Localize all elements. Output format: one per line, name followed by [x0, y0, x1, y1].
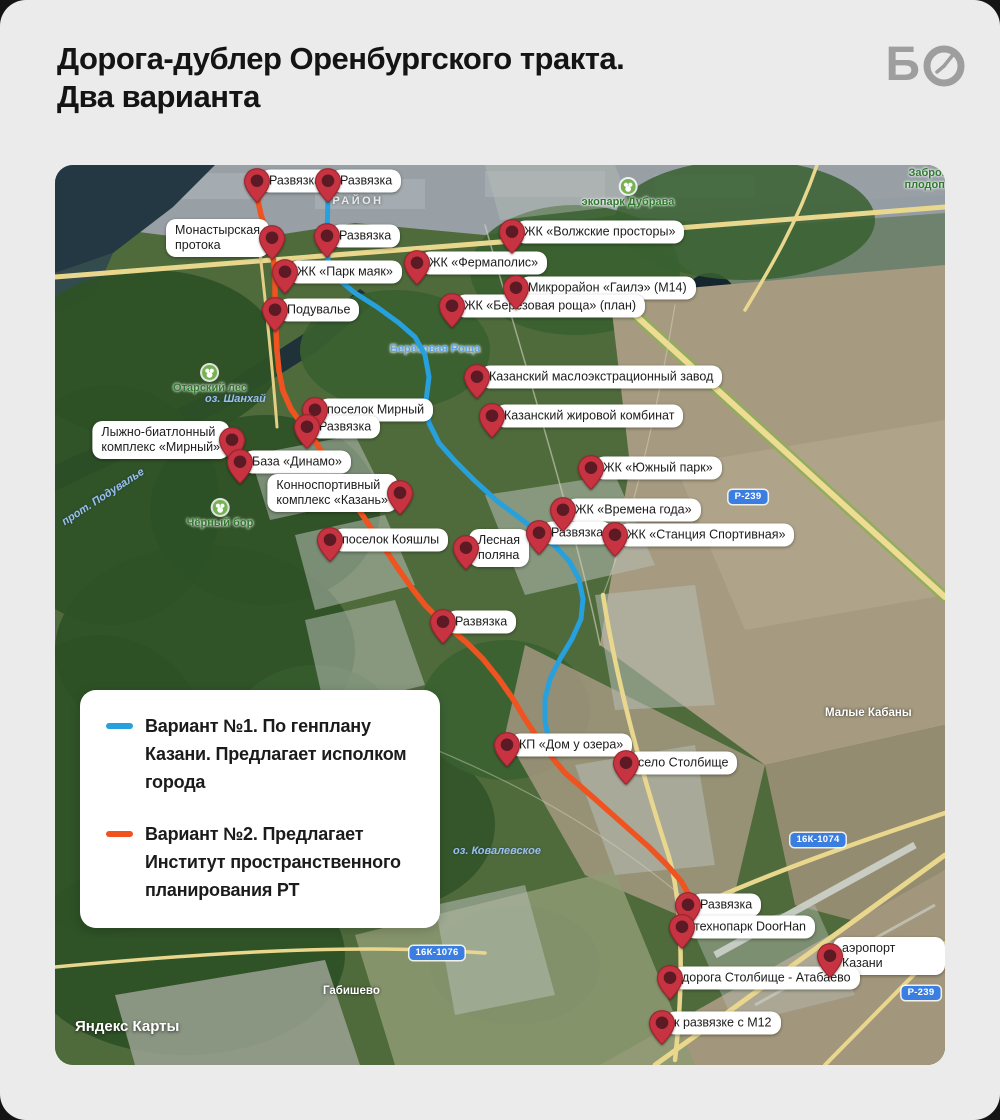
variant-2-line-swatch	[106, 831, 133, 837]
map-pin-icon[interactable]	[244, 168, 270, 203]
map-pin-icon[interactable]	[317, 527, 343, 562]
yandex-maps-attribution[interactable]: Яндекс Карты	[75, 1018, 179, 1035]
map-pins-layer: РазвязкаРазвязкаМонастырская протокаРазв…	[55, 165, 945, 1065]
map-pin-icon[interactable]	[315, 168, 341, 203]
map-pin-icon[interactable]	[272, 259, 298, 294]
legend-item-variant-1: Вариант №1. По генплану Казани. Предлага…	[106, 712, 428, 796]
pin-label: Развязка	[330, 225, 400, 248]
pin-label: ЖК «Времена года»	[566, 499, 701, 522]
pin-label: Казанский маслоэкстрационный завод	[480, 366, 722, 389]
pin-label: База «Динамо»	[243, 451, 351, 474]
map-pin-icon[interactable]	[227, 449, 253, 484]
page: Дорога-дублер Оренбургского тракта. Два …	[0, 0, 1000, 1120]
pin-label: Подувалье	[278, 299, 359, 322]
map-pin-icon[interactable]	[430, 609, 456, 644]
page-title: Дорога-дублер Оренбургского тракта. Два …	[57, 40, 624, 116]
pin-label: ЖК «Березовая роща» (план)	[455, 295, 645, 318]
map-pin-icon[interactable]	[453, 535, 479, 570]
pin-label: к развязке с М12	[665, 1012, 781, 1035]
legend-card: Вариант №1. По генплану Казани. Предлага…	[80, 690, 440, 928]
map-pin-icon[interactable]	[669, 914, 695, 949]
legend-item-variant-2: Вариант №2. Предлагает Институт простран…	[106, 820, 428, 904]
map-pin-icon[interactable]	[494, 732, 520, 767]
map-pin-icon[interactable]	[294, 414, 320, 449]
map-pin-icon[interactable]	[602, 522, 628, 557]
pin-label: Развязка	[691, 894, 761, 917]
map-pin-icon[interactable]	[259, 225, 285, 260]
map-pin-icon[interactable]	[657, 965, 683, 1000]
map-pin-icon[interactable]	[314, 223, 340, 258]
pin-label: Развязка	[331, 170, 401, 193]
map-pin-icon[interactable]	[613, 750, 639, 785]
variant-1-line-swatch	[106, 723, 133, 729]
pin-label: ЖК «Южный парк»	[594, 457, 722, 480]
map-pin-icon[interactable]	[503, 275, 529, 310]
map-pin-icon[interactable]	[649, 1010, 675, 1045]
title-line-2: Два варианта	[57, 78, 624, 116]
business-online-logo: Б	[886, 42, 968, 88]
variant-1-label: Вариант №1. По генплану Казани. Предлага…	[145, 712, 428, 796]
pin-label: ЖК «Волжские просторы»	[515, 221, 684, 244]
map-pin-icon[interactable]	[262, 297, 288, 332]
title-line-1: Дорога-дублер Оренбургского тракта.	[57, 40, 624, 78]
pin-label: Монастырская протока	[166, 219, 269, 257]
map-pin-icon[interactable]	[479, 403, 505, 438]
map-pin-icon[interactable]	[550, 497, 576, 532]
map-pin-icon[interactable]	[387, 480, 413, 515]
pin-label: Казанский жировой комбинат	[495, 405, 683, 428]
pin-label: Лыжно-биатлонный комплекс «Мирный»	[92, 421, 229, 459]
map-pin-icon[interactable]	[464, 364, 490, 399]
map-pin-icon[interactable]	[578, 455, 604, 490]
pin-label: поселок Кояшлы	[333, 529, 448, 552]
pin-label: ЖК «Парк маяк»	[288, 261, 402, 284]
pin-label: Конноспортивный комплекс «Казань»	[267, 474, 397, 512]
logo-clock-icon	[921, 42, 967, 88]
pin-label: Развязка	[446, 611, 516, 634]
pin-label: технопарк DoorHan	[685, 916, 815, 939]
map-pin-icon[interactable]	[404, 250, 430, 285]
pin-label: ЖК «Станция Спортивная»	[618, 524, 794, 547]
satellite-map[interactable]: ВОЛЖСКИЙ РАЙОНэкопарк ДубраваЗаброшенный…	[55, 165, 945, 1065]
pin-label: село Столбище	[629, 752, 737, 775]
map-pin-icon[interactable]	[817, 943, 843, 978]
logo-letter: Б	[886, 42, 921, 88]
variant-2-label: Вариант №2. Предлагает Институт простран…	[145, 820, 428, 904]
map-pin-icon[interactable]	[499, 219, 525, 254]
map-pin-icon[interactable]	[439, 293, 465, 328]
pin-label: ЖК «Фермаполис»	[420, 252, 547, 275]
map-pin-icon[interactable]	[526, 520, 552, 555]
